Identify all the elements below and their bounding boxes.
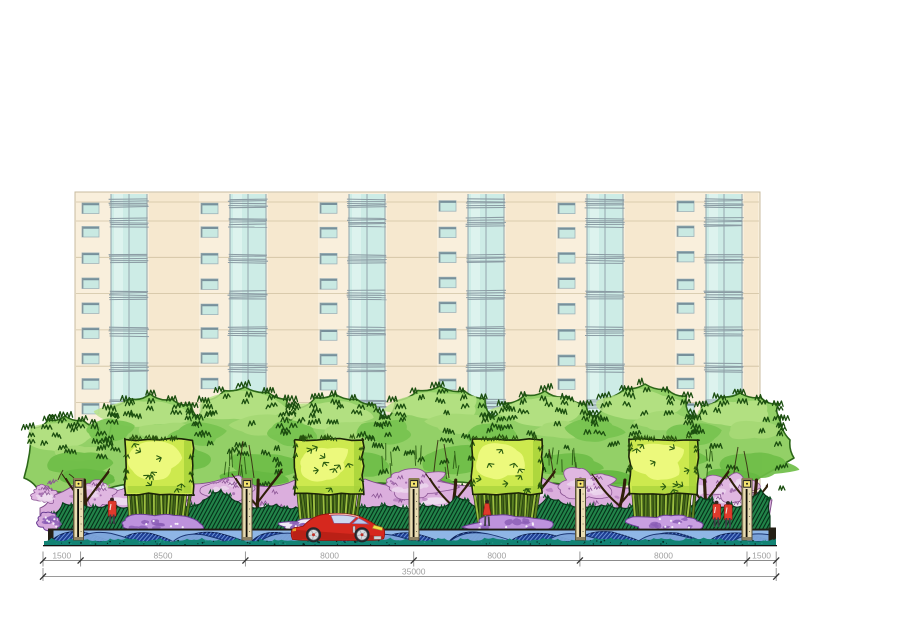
svg-text:8000: 8000: [487, 550, 506, 560]
svg-text:1500: 1500: [752, 550, 771, 560]
svg-text:8000: 8000: [654, 550, 673, 560]
svg-text:8500: 8500: [154, 550, 173, 560]
svg-text:35000: 35000: [402, 567, 426, 577]
svg-text:1500: 1500: [52, 550, 71, 560]
svg-text:8000: 8000: [320, 550, 339, 560]
